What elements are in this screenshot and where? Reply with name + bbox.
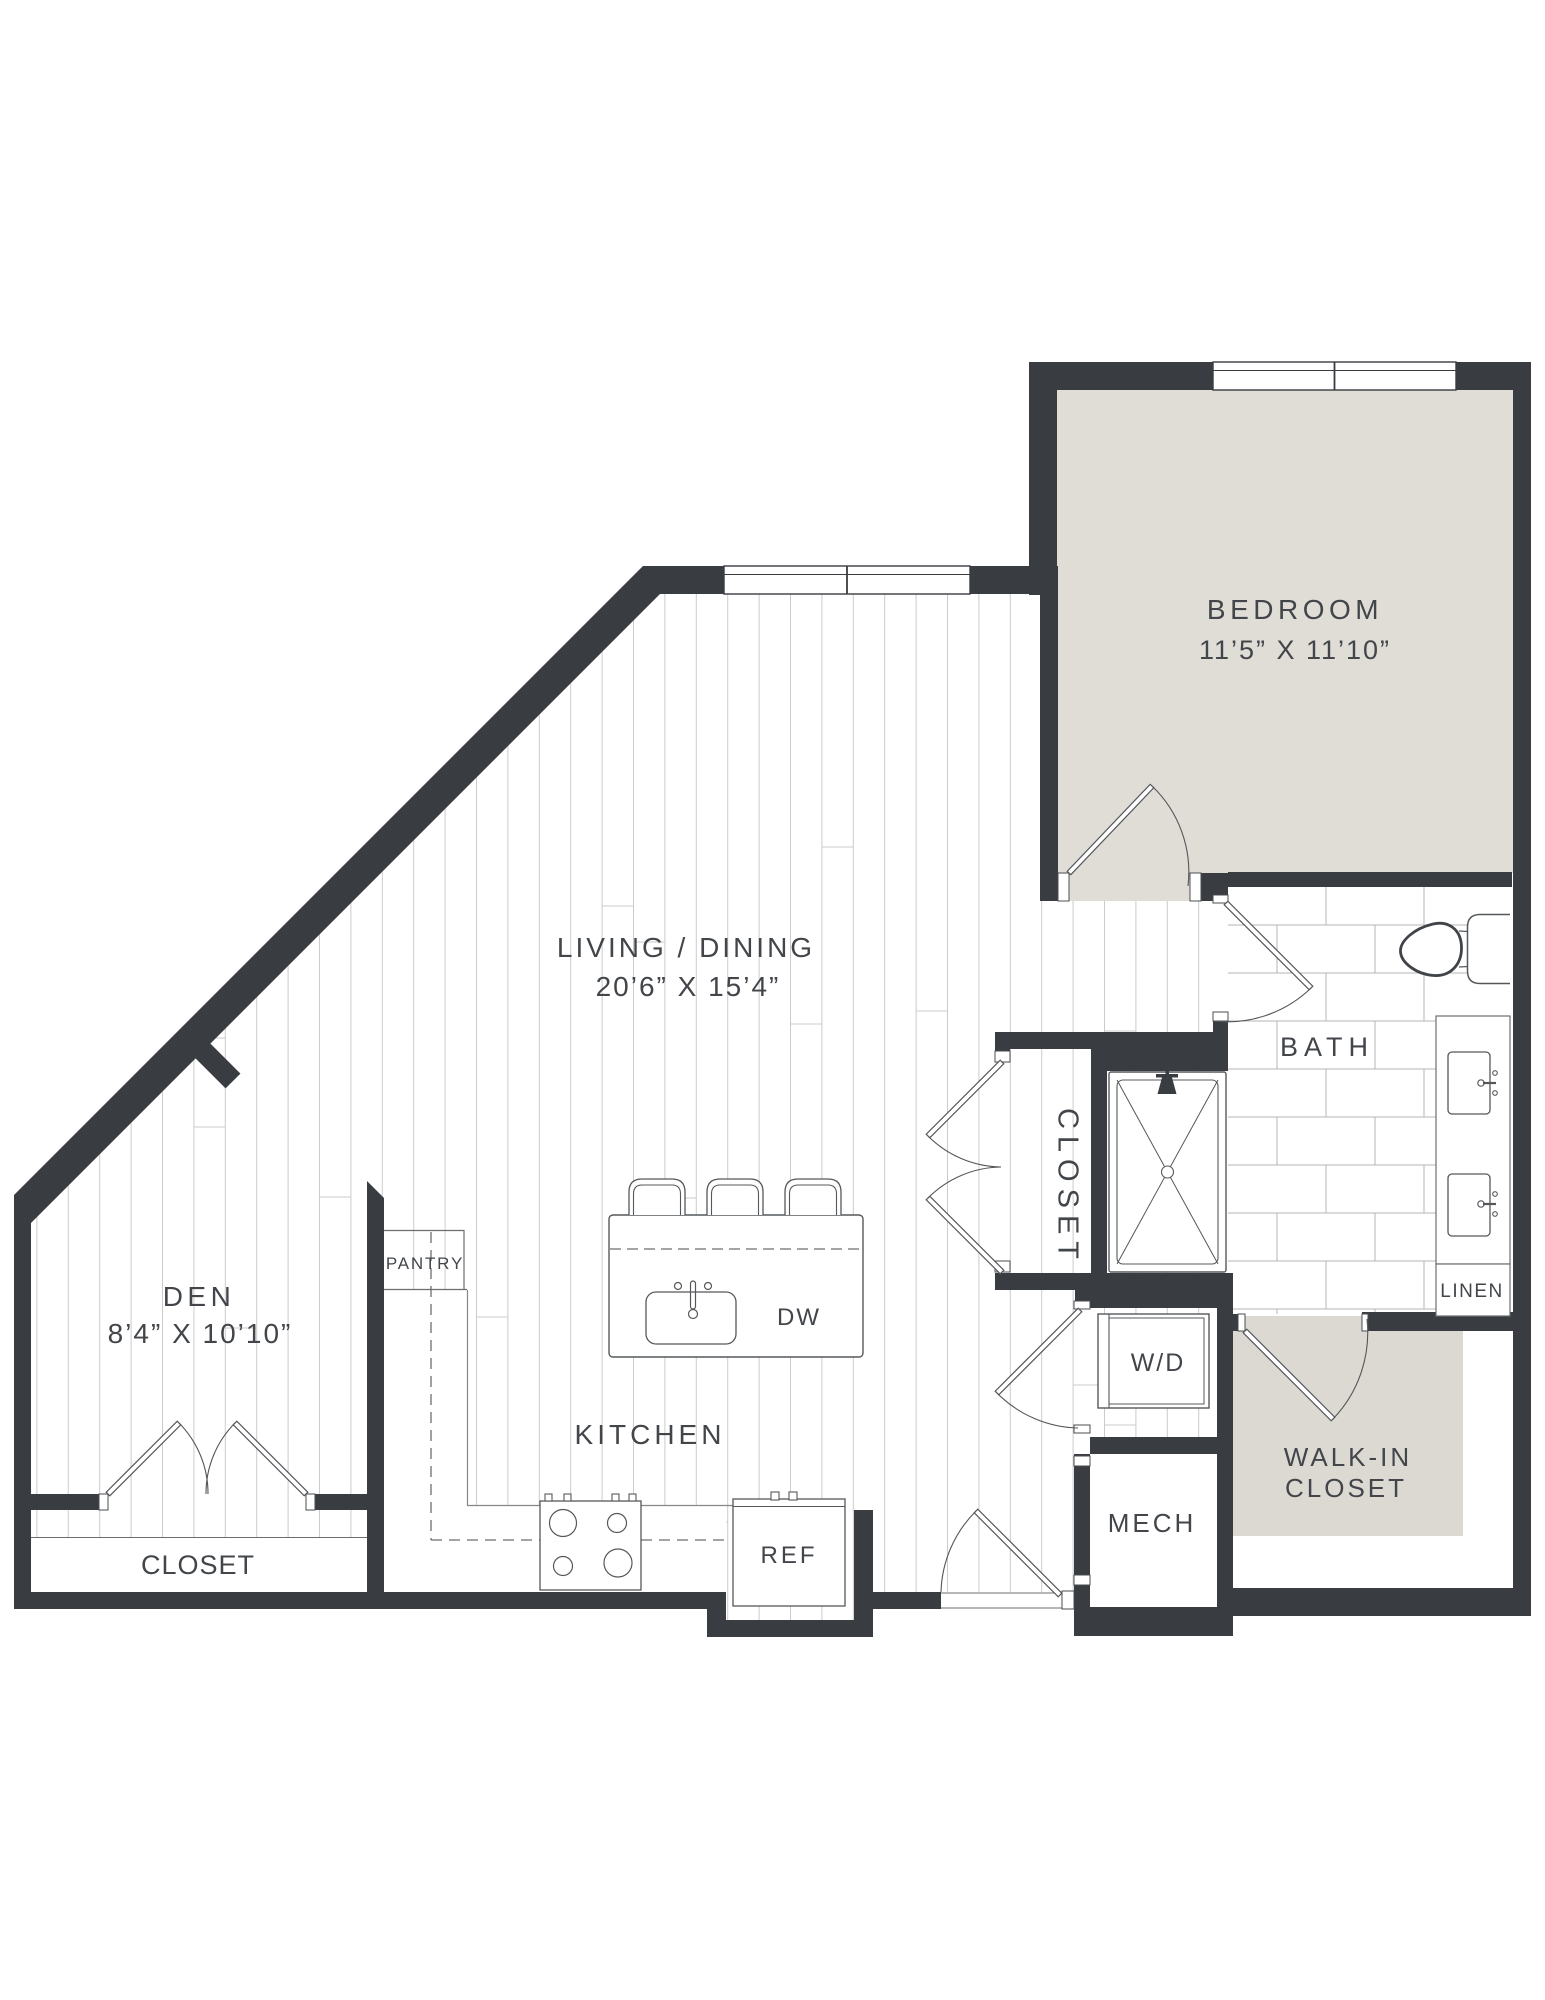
svg-text:W/D: W/D xyxy=(1131,1349,1186,1377)
svg-text:WALK-IN: WALK-IN xyxy=(1284,1442,1412,1472)
svg-text:BATH: BATH xyxy=(1280,1032,1374,1062)
svg-text:LINEN: LINEN xyxy=(1440,1281,1503,1302)
svg-text:8’4” X 10’10”: 8’4” X 10’10” xyxy=(108,1318,293,1349)
svg-text:PANTRY: PANTRY xyxy=(386,1254,464,1273)
svg-text:CLOSET: CLOSET xyxy=(1285,1473,1407,1503)
svg-text:BEDROOM: BEDROOM xyxy=(1207,594,1383,625)
svg-text:DW: DW xyxy=(777,1304,821,1331)
svg-text:LIVING / DINING: LIVING / DINING xyxy=(557,932,815,963)
svg-text:REF: REF xyxy=(761,1542,818,1569)
svg-text:MECH: MECH xyxy=(1108,1508,1197,1538)
svg-text:KITCHEN: KITCHEN xyxy=(575,1419,726,1450)
svg-text:CLOSET: CLOSET xyxy=(141,1550,255,1580)
svg-text:11’5” X 11’10”: 11’5” X 11’10” xyxy=(1199,635,1391,665)
svg-text:20’6” X 15’4”: 20’6” X 15’4” xyxy=(596,971,781,1002)
svg-text:CLOSET: CLOSET xyxy=(1051,1108,1083,1266)
svg-text:DEN: DEN xyxy=(163,1281,236,1312)
